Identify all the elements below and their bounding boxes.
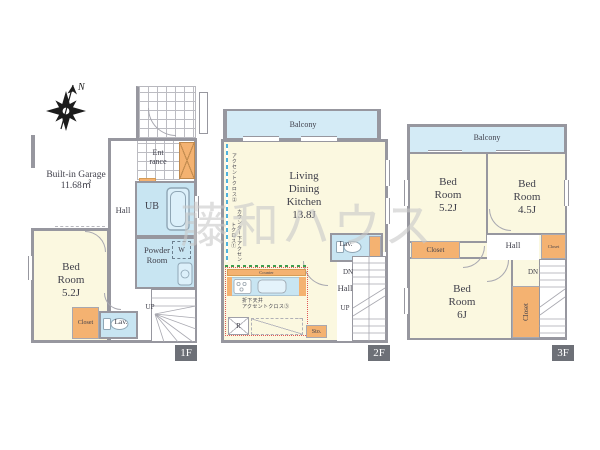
counter-label: Counter [259,270,274,275]
floor2-tag: 2F [368,345,390,361]
floor2-right-window-a [385,160,390,186]
floor3-right-window [564,180,569,206]
floor3-closet-right: Closet [541,234,566,259]
kitchen-unit [227,277,306,296]
floor3-hall-label: Hall [498,240,528,250]
floor2-balcony-window-left [243,136,279,142]
compass-north-label: N [77,82,86,93]
floor2-up-label: UP [335,304,355,312]
floor3-tag: 3F [552,345,574,361]
stove-icon [234,280,251,294]
sink-icon [258,280,286,293]
floor1-closet-label: Closet [78,320,93,326]
dining-counter-dashed [251,318,303,335]
floor1-bedroom-window [28,256,33,280]
ceiling-accent-note: 折下天井 アクセントクロス③ [242,299,306,311]
floor1-lavatory-label: Lav. [107,318,135,327]
watermark: 藤和ハウス [180,186,435,256]
floor2-balcony-label: Balcony [253,120,353,129]
floor1-tag: 1F [175,345,197,361]
kitchen-counter: Counter [227,269,306,276]
refrigerator-space: R [228,317,249,335]
shoe-cabinet [179,142,195,179]
floor3-stairs [539,259,566,338]
floor3-balcony-label: Balcony [437,133,537,142]
washbasin-icon [177,262,193,286]
floor2-hall-label: Hall [329,283,361,293]
floor1-hall-label: Hall [108,205,138,215]
floor1-bedroom-label: Bed Room 5.2J [41,261,101,300]
floor1-closet: Closet [72,307,99,339]
floor3-left-window-b [404,288,409,314]
floor2-storage: Sto. [306,325,327,338]
utility-box [199,92,208,134]
floor2-balcony-window-right [301,136,337,142]
storage-label: Sto. [312,329,322,335]
floor1-stairs [151,289,196,342]
entrance-label: Ent rance [138,148,178,167]
unit-bath-label: UB [139,201,165,213]
floor3-bedroom3-label: Bed Room 6J [432,283,492,322]
floor1-up-label: UP [141,303,159,311]
garage-side-wall [31,135,35,168]
refrigerator-label: R [236,322,241,330]
floor3-closet-bottom: Closet [512,286,540,338]
floor3-closet-right-label: Closet [548,244,560,249]
floor3-dn-label: DN [524,268,542,276]
eaves-dashed-line [55,226,105,227]
floor3-closet-bottom-label: Closet [522,303,530,321]
floor2-dn-label: DN [338,268,358,276]
powder-room-label: Powder Room [136,245,178,265]
compass-icon: N [40,80,94,136]
floorplan-canvas: N Built-in Garage 11.68㎡ Ent rance UB W … [0,0,600,450]
